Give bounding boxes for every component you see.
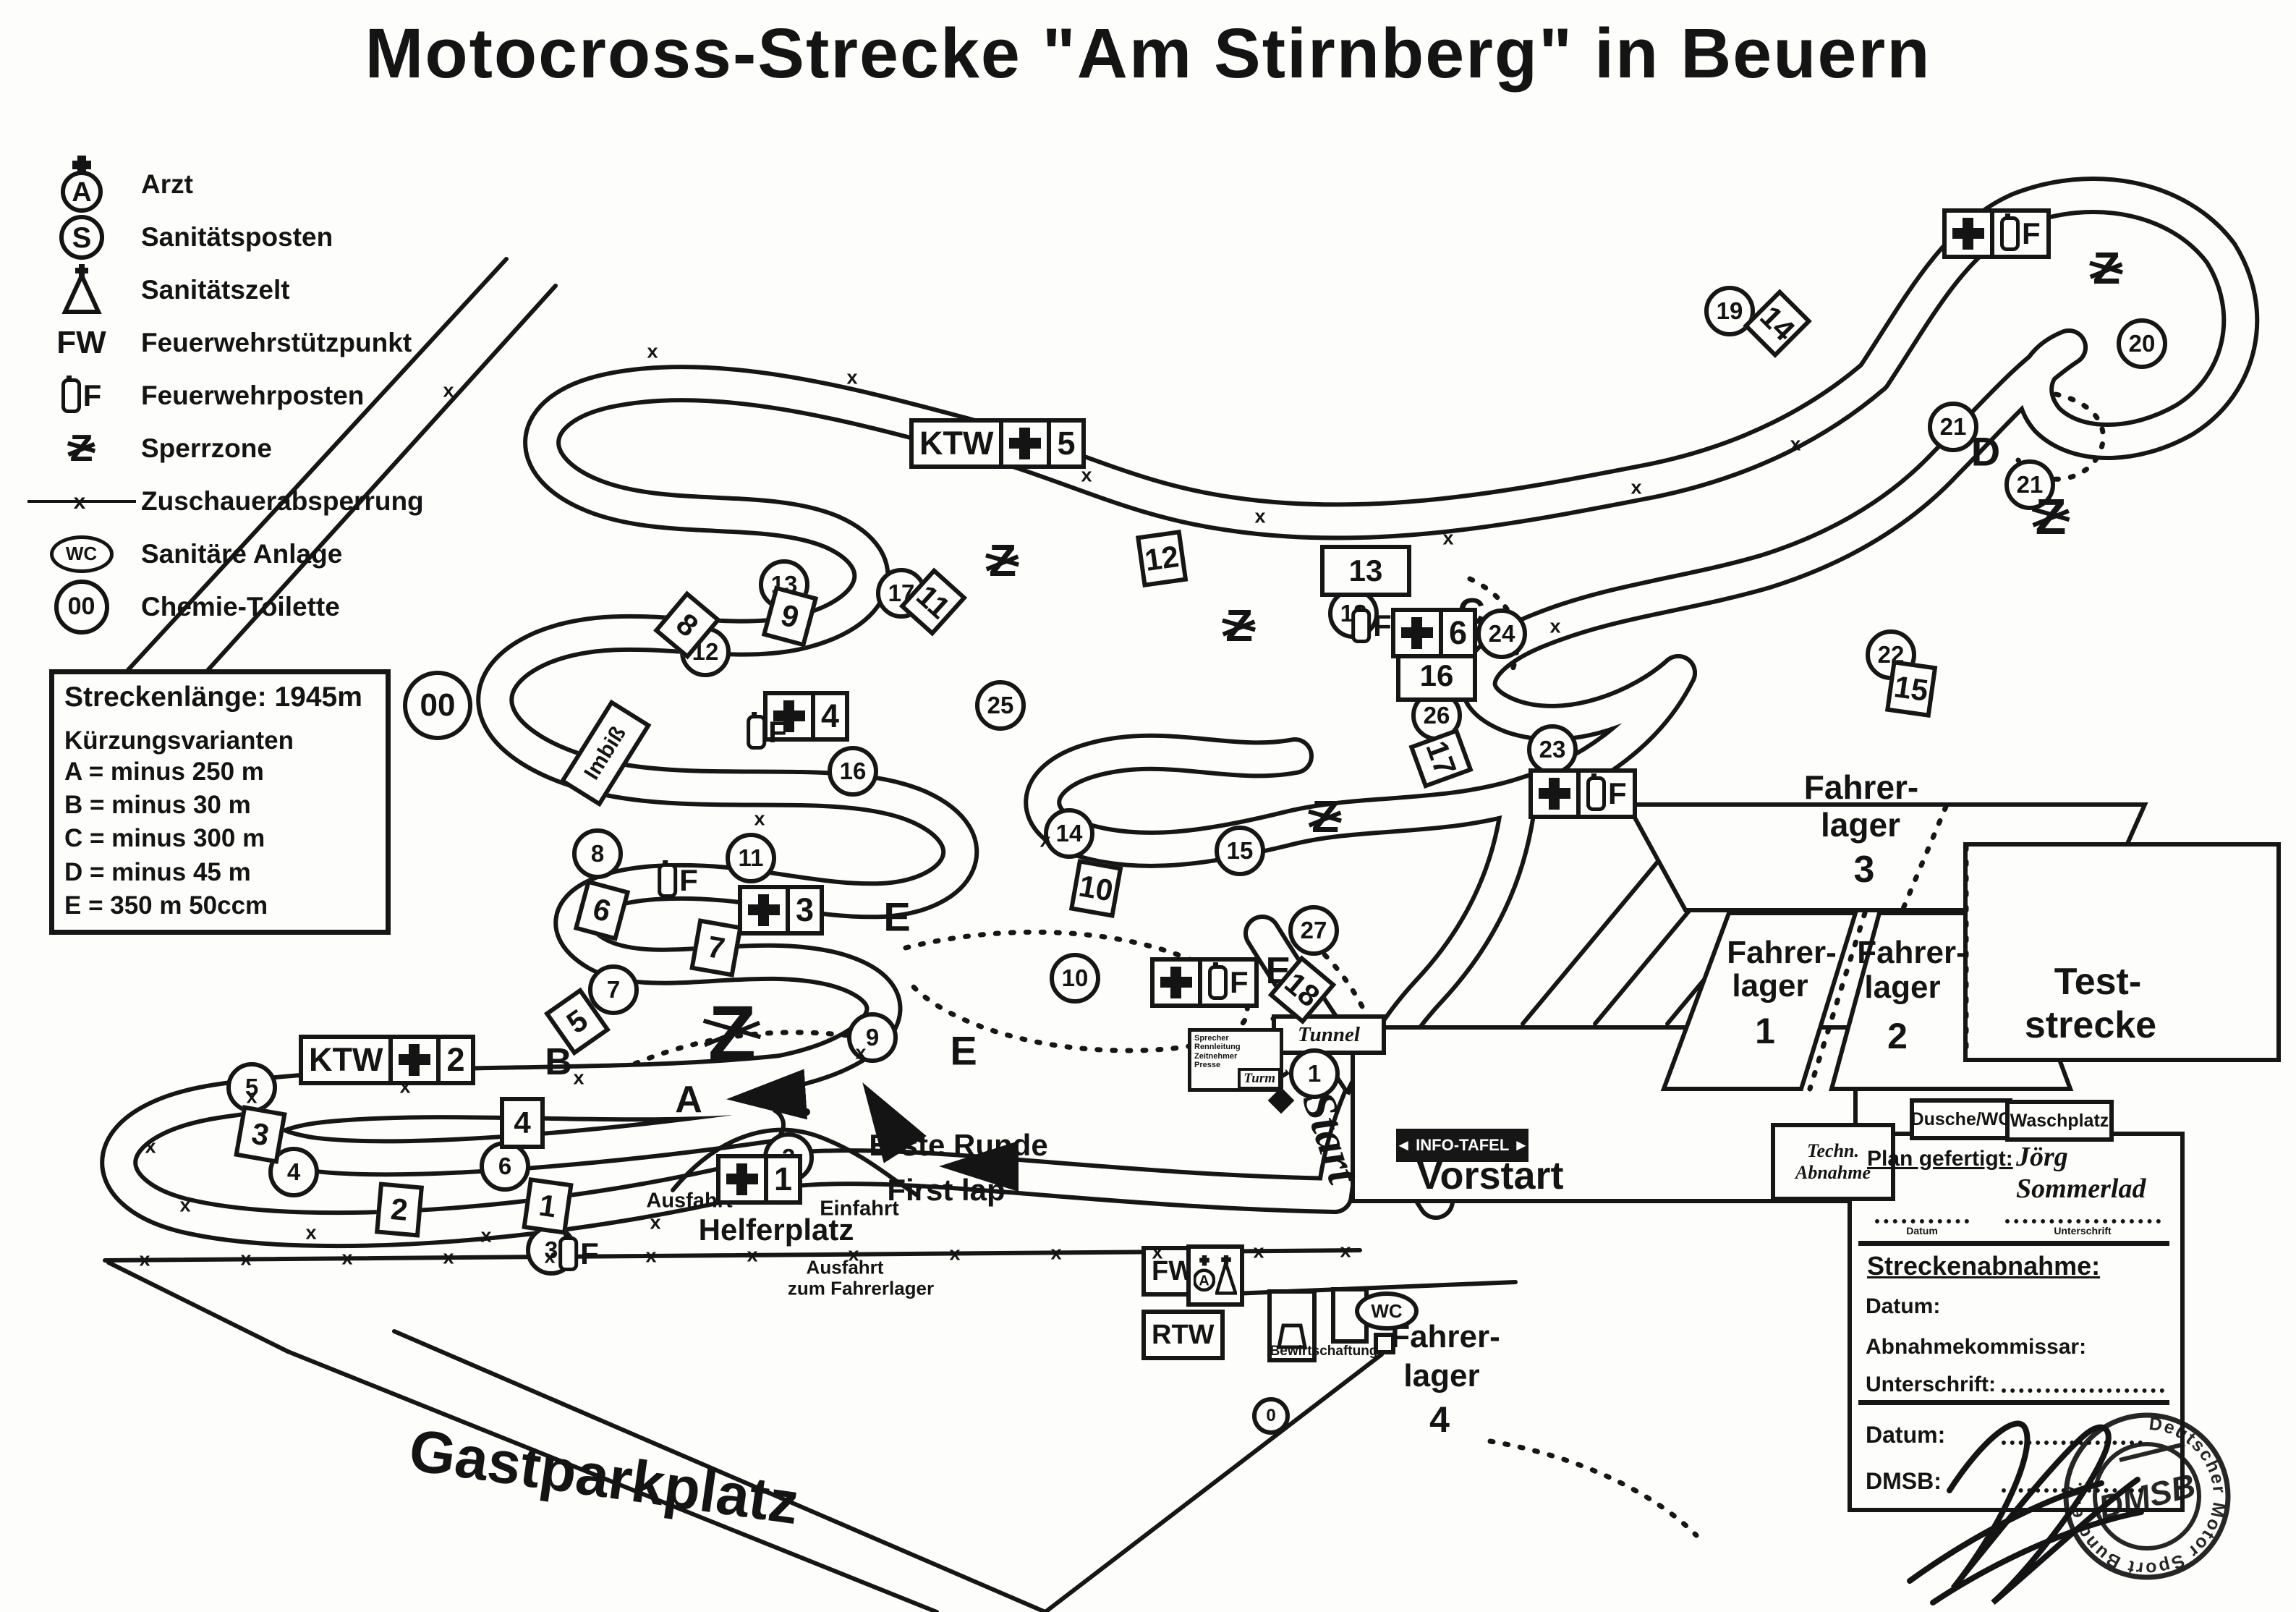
datum-tiny-label: Datum bbox=[1906, 1225, 1938, 1236]
sanitaetszelt-icon bbox=[22, 264, 141, 316]
spectator-barrier-x: x bbox=[480, 1225, 491, 1247]
map-label: Bewirtschaftung bbox=[1270, 1344, 1378, 1359]
abnahmekommissar-label: Abnahmekommissar: bbox=[1866, 1335, 2086, 1359]
aid-station-ktw: KTW5 bbox=[909, 418, 1086, 469]
red-cross-icon bbox=[1952, 218, 1984, 250]
map-label: First lap bbox=[887, 1173, 1005, 1208]
jump-marker-13: 13 bbox=[1320, 545, 1411, 597]
spectator-barrier-x: x bbox=[240, 1248, 251, 1270]
datum2-dotline bbox=[2002, 1441, 2143, 1445]
legend: AArztSSanitätspostenSanitätszeltFWFeuerw… bbox=[22, 158, 424, 633]
spectator-barrier-x: x bbox=[1050, 1242, 1061, 1265]
spectator-barrier-x: x bbox=[145, 1136, 156, 1158]
map-label: Fahrer- bbox=[1857, 935, 1967, 971]
toilet-symbol: 0 bbox=[1252, 1397, 1290, 1435]
spectator-barrier-x: x bbox=[139, 1249, 150, 1271]
dmsb-dotline bbox=[2002, 1488, 2143, 1493]
variants-list: A = minus 250 mB = minus 30 mC = minus 3… bbox=[64, 755, 375, 922]
spectator-barrier-x: x bbox=[341, 1247, 352, 1270]
page-title: Motocross-Strecke "Am Stirnberg" in Beue… bbox=[0, 13, 2296, 94]
track-map-page: Motocross-Strecke "Am Stirnberg" in Beue… bbox=[0, 0, 2296, 1612]
variant-line-4: E = 350 m 50ccm bbox=[64, 889, 375, 922]
red-cross-icon bbox=[1160, 967, 1192, 998]
svg-text:A: A bbox=[72, 177, 91, 208]
plan-box: Plan gefertigt: Jörg Sommerlad Datum Unt… bbox=[1850, 1134, 2182, 1510]
spectator-barrier-x: x bbox=[573, 1067, 584, 1090]
turm-sign-lines: SprecherRennleitungZeitnehmerPresse bbox=[1191, 1032, 1280, 1069]
spectator-barrier-x: x bbox=[650, 1212, 660, 1234]
legend-label: Chemie-Toilette bbox=[141, 592, 340, 622]
spectator-barrier-x: x bbox=[949, 1243, 960, 1265]
map-label: A bbox=[675, 1078, 702, 1121]
aid-station-crossnum: 3 bbox=[738, 885, 824, 936]
spectator-barrier-x: x bbox=[1152, 1242, 1162, 1264]
map-label: Test- bbox=[2054, 960, 2141, 1004]
plan-gefertigt-value: Jörg Sommerlad bbox=[2016, 1141, 2182, 1205]
post-marker-7: 7 bbox=[588, 964, 639, 1015]
plan-gefertigt-label: Plan gefertigt: bbox=[1867, 1147, 2013, 1171]
feuerwehrposten-symbol: F bbox=[558, 1236, 599, 1271]
sperrzone-icon: Z bbox=[22, 430, 141, 467]
arzt-icon: A bbox=[1194, 1255, 1215, 1296]
spectator-barrier-x: x bbox=[443, 1247, 454, 1269]
extinguisher-icon bbox=[747, 715, 766, 750]
variant-line-0: A = minus 250 m bbox=[64, 755, 375, 789]
map-label: Fahrer- bbox=[1804, 768, 1918, 807]
extinguisher-icon bbox=[1586, 776, 1606, 811]
info-tafel-sign: ◄ INFO-TAFEL ► bbox=[1396, 1129, 1528, 1162]
extinguisher-icon bbox=[1208, 965, 1228, 1000]
sanitaetsposten-icon: S bbox=[22, 213, 141, 261]
map-label: 4 bbox=[1429, 1399, 1450, 1441]
spectator-barrier-x: x bbox=[179, 1195, 190, 1217]
spectator-barrier-x: x bbox=[443, 380, 454, 402]
spectator-barrier-x: x bbox=[1340, 1240, 1351, 1263]
streckenabnahme-title: Streckenabnahme: bbox=[1867, 1251, 2100, 1281]
jump-marker-15: 15 bbox=[1885, 660, 1937, 718]
red-cross-icon bbox=[399, 1044, 430, 1076]
legend-label: Sperrzone bbox=[141, 433, 272, 464]
sperrzone-marker: Z bbox=[708, 994, 756, 1072]
map-label: 3 bbox=[1854, 848, 1875, 891]
abnahme-unterschrift-label: Unterschrift: bbox=[1866, 1373, 1996, 1397]
legend-label: Sanitätszelt bbox=[141, 275, 290, 305]
unterschrift2-dotline bbox=[2002, 1388, 2164, 1393]
spectator-barrier-x: x bbox=[846, 367, 857, 389]
red-cross-icon bbox=[1539, 778, 1570, 810]
map-label: lager bbox=[1403, 1358, 1479, 1394]
legend-label: Sanitäre Anlage bbox=[141, 539, 342, 569]
aid-station-crossf: F bbox=[1528, 768, 1637, 819]
post-marker-23: 23 bbox=[1527, 724, 1578, 775]
post-marker-15: 15 bbox=[1215, 826, 1265, 876]
jump-marker-2: 2 bbox=[375, 1182, 424, 1237]
map-label: strecke bbox=[2025, 1004, 2156, 1047]
variant-line-1: B = minus 30 m bbox=[64, 789, 375, 822]
dmsb-label: DMSB: bbox=[1866, 1468, 1942, 1495]
legend-label: Sanitätsposten bbox=[141, 222, 333, 253]
post-marker-21: 21 bbox=[1928, 402, 1978, 452]
chemie-toilette-symbol: 00 bbox=[403, 671, 472, 740]
spectator-barrier-x: x bbox=[1790, 433, 1800, 456]
red-cross-icon bbox=[1009, 428, 1041, 459]
post-marker-20: 20 bbox=[2117, 318, 2167, 369]
jump-marker-12: 12 bbox=[1136, 530, 1188, 587]
spectator-barrier-x: x bbox=[1630, 477, 1641, 499]
svg-text:A: A bbox=[1199, 1273, 1209, 1289]
post-marker-8: 8 bbox=[572, 828, 623, 879]
datum-dotline bbox=[1875, 1219, 1969, 1223]
jump-marker-3: 3 bbox=[234, 1105, 287, 1164]
post-marker-1: 1 bbox=[1289, 1048, 1340, 1099]
unterschrift-dotline bbox=[2005, 1219, 2161, 1223]
map-label: lager bbox=[1821, 805, 1900, 844]
feuerwehrstuetzpunkt-icon: FW bbox=[22, 325, 141, 361]
jump-marker-10: 10 bbox=[1069, 859, 1123, 918]
sperrzone-marker: Z bbox=[2093, 247, 2120, 292]
aid-station-crossf: F bbox=[1150, 957, 1259, 1008]
map-label: E bbox=[950, 1027, 977, 1074]
map-label: lager bbox=[1732, 968, 1808, 1004]
post-marker-25: 25 bbox=[975, 680, 1026, 731]
aid-station-crossf: F bbox=[1942, 208, 2051, 259]
spectator-barrier-x: x bbox=[855, 1042, 866, 1064]
aid-station-crossnum: 6 bbox=[1391, 608, 1477, 658]
zuschauerabsperrung-icon: x bbox=[22, 489, 141, 514]
spectator-barrier-x: x bbox=[645, 1245, 656, 1268]
unterschrift-tiny-label: Unterschrift bbox=[2054, 1225, 2111, 1236]
legend-item-5: ZSperrzone bbox=[22, 422, 424, 475]
spectator-barrier-x: x bbox=[1254, 506, 1265, 528]
spectator-barrier-x: x bbox=[647, 341, 658, 363]
extinguisher-icon bbox=[2000, 216, 2020, 251]
extinguisher-icon bbox=[658, 863, 677, 898]
datum2-label: Datum: bbox=[1866, 1422, 1945, 1448]
jump-marker-1: 1 bbox=[522, 1177, 573, 1235]
map-label: Fahrer- bbox=[1727, 935, 1837, 971]
spectator-barrier-x: x bbox=[747, 1244, 757, 1267]
map-label: zum Fahrerlager bbox=[788, 1278, 934, 1300]
legend-item-4: FFeuerwehrposten bbox=[22, 369, 424, 422]
post-marker-24: 24 bbox=[1476, 608, 1527, 659]
spectator-barrier-x: x bbox=[1039, 830, 1050, 852]
variant-line-2: C = minus 300 m bbox=[64, 822, 375, 855]
wc-icon: WC bbox=[22, 535, 141, 573]
spectator-barrier-x: x bbox=[848, 1244, 859, 1266]
map-label: E bbox=[883, 894, 910, 941]
boxed-label: Tunnel bbox=[1272, 1014, 1386, 1055]
spectator-barrier-x: x bbox=[1253, 1241, 1264, 1263]
legend-item-8: 00Chemie-Toilette bbox=[22, 580, 424, 633]
sperrzone-marker: Z bbox=[1311, 795, 1339, 840]
extinguisher-icon bbox=[1351, 608, 1371, 643]
legend-label: Arzt bbox=[141, 169, 193, 200]
aid-station-ktw: KTW2 bbox=[299, 1035, 475, 1085]
track-length: Streckenlänge: 1945m bbox=[64, 682, 375, 713]
feuerwehrposten-symbol: F bbox=[747, 715, 787, 750]
spectator-barrier-x: x bbox=[246, 1086, 257, 1108]
sperrzone-marker: Z bbox=[2036, 491, 2067, 542]
post-marker-14: 14 bbox=[1044, 808, 1094, 859]
sperrzone-marker: Z bbox=[989, 539, 1016, 584]
red-cross-icon bbox=[1401, 617, 1433, 649]
aid-station-arztzelt: A bbox=[1186, 1244, 1244, 1307]
variant-line-3: D = minus 45 m bbox=[64, 856, 375, 889]
red-cross-icon bbox=[748, 894, 780, 926]
extinguisher-icon bbox=[558, 1236, 578, 1271]
legend-item-3: FWFeuerwehrstützpunkt bbox=[22, 316, 424, 369]
legend-item-7: WCSanitäre Anlage bbox=[22, 527, 424, 580]
chemie-toilette-icon: 00 bbox=[22, 580, 141, 635]
legend-label: Zuschauerabsperrung bbox=[141, 486, 424, 517]
spectator-barrier-x: x bbox=[305, 1222, 316, 1244]
map-label: lager bbox=[1864, 970, 1940, 1006]
spectator-barrier-x: x bbox=[399, 1076, 410, 1098]
map-label: Erste Runde bbox=[869, 1128, 1047, 1163]
legend-label: Feuerwehrposten bbox=[141, 381, 364, 411]
abnahme-datum-label: Datum: bbox=[1866, 1294, 1940, 1319]
legend-label: Feuerwehrstützpunkt bbox=[141, 328, 412, 358]
post-marker-11: 11 bbox=[726, 833, 776, 883]
aid-station-rtw: RTW bbox=[1141, 1310, 1225, 1360]
legend-item-0: AArzt bbox=[22, 158, 424, 211]
spectator-barrier-x: x bbox=[1081, 464, 1092, 487]
spectator-barrier-x: x bbox=[1442, 527, 1453, 550]
legend-item-1: SSanitätsposten bbox=[22, 211, 424, 263]
spectator-barrier-x: x bbox=[1549, 616, 1560, 638]
map-label: 2 bbox=[1887, 1015, 1908, 1057]
legend-item-2: Sanitätszelt bbox=[22, 263, 424, 316]
post-marker-27: 27 bbox=[1288, 905, 1339, 956]
feuerwehrposten-symbol: F bbox=[658, 863, 698, 898]
svg-text:x: x bbox=[73, 490, 85, 514]
svg-text:S: S bbox=[72, 222, 91, 254]
turm-sign: SprecherRennleitungZeitnehmerPresse Turm bbox=[1188, 1028, 1283, 1092]
map-label: 1 bbox=[1755, 1010, 1775, 1052]
divider bbox=[1858, 1241, 2169, 1246]
feuerwehrposten-symbol: F bbox=[1351, 608, 1392, 643]
variants-title: Kürzungsvarianten bbox=[64, 726, 375, 755]
jump-marker-4: 4 bbox=[500, 1097, 545, 1149]
map-label: Ausfahrt bbox=[807, 1257, 884, 1279]
spectator-barrier-x: x bbox=[754, 808, 765, 831]
jump-marker-7: 7 bbox=[689, 918, 743, 977]
arzt-icon: A bbox=[22, 156, 141, 213]
red-cross-icon bbox=[726, 1163, 758, 1195]
post-marker-16: 16 bbox=[828, 746, 878, 797]
wc-symbol: WC bbox=[1355, 1291, 1419, 1331]
legend-item-6: xZuschauerabsperrung bbox=[22, 475, 424, 527]
spectator-barrier-x: x bbox=[544, 1246, 555, 1268]
track-info-box: Streckenlänge: 1945m Kürzungsvarianten A… bbox=[49, 669, 391, 935]
post-marker-10: 10 bbox=[1050, 953, 1100, 1004]
sanitaetszelt-icon bbox=[1215, 1255, 1237, 1296]
turm-label: Turm bbox=[1238, 1068, 1281, 1090]
feuerwehrposten-icon: F bbox=[22, 378, 141, 413]
divider bbox=[1858, 1400, 2169, 1405]
aid-station-crossnum: 1 bbox=[716, 1154, 802, 1205]
sperrzone-marker: Z bbox=[1225, 604, 1253, 649]
